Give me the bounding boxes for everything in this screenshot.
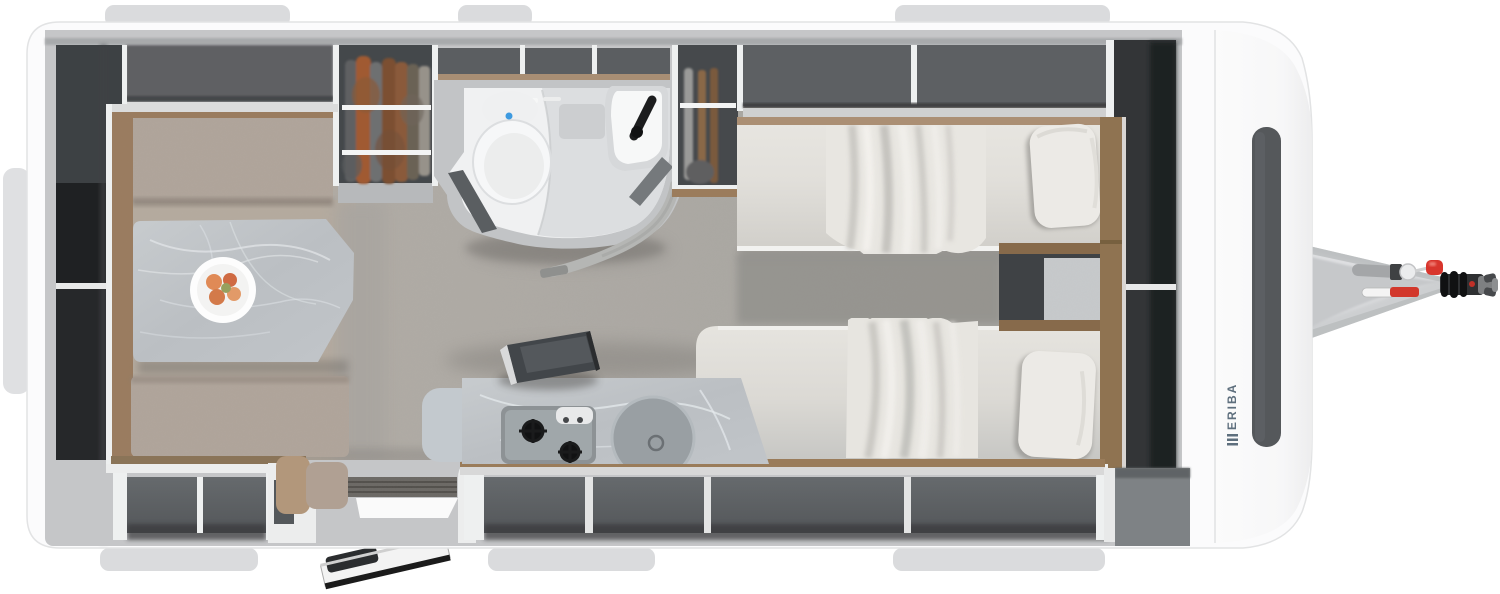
- svg-text:ERIBA: ERIBA: [1225, 383, 1239, 430]
